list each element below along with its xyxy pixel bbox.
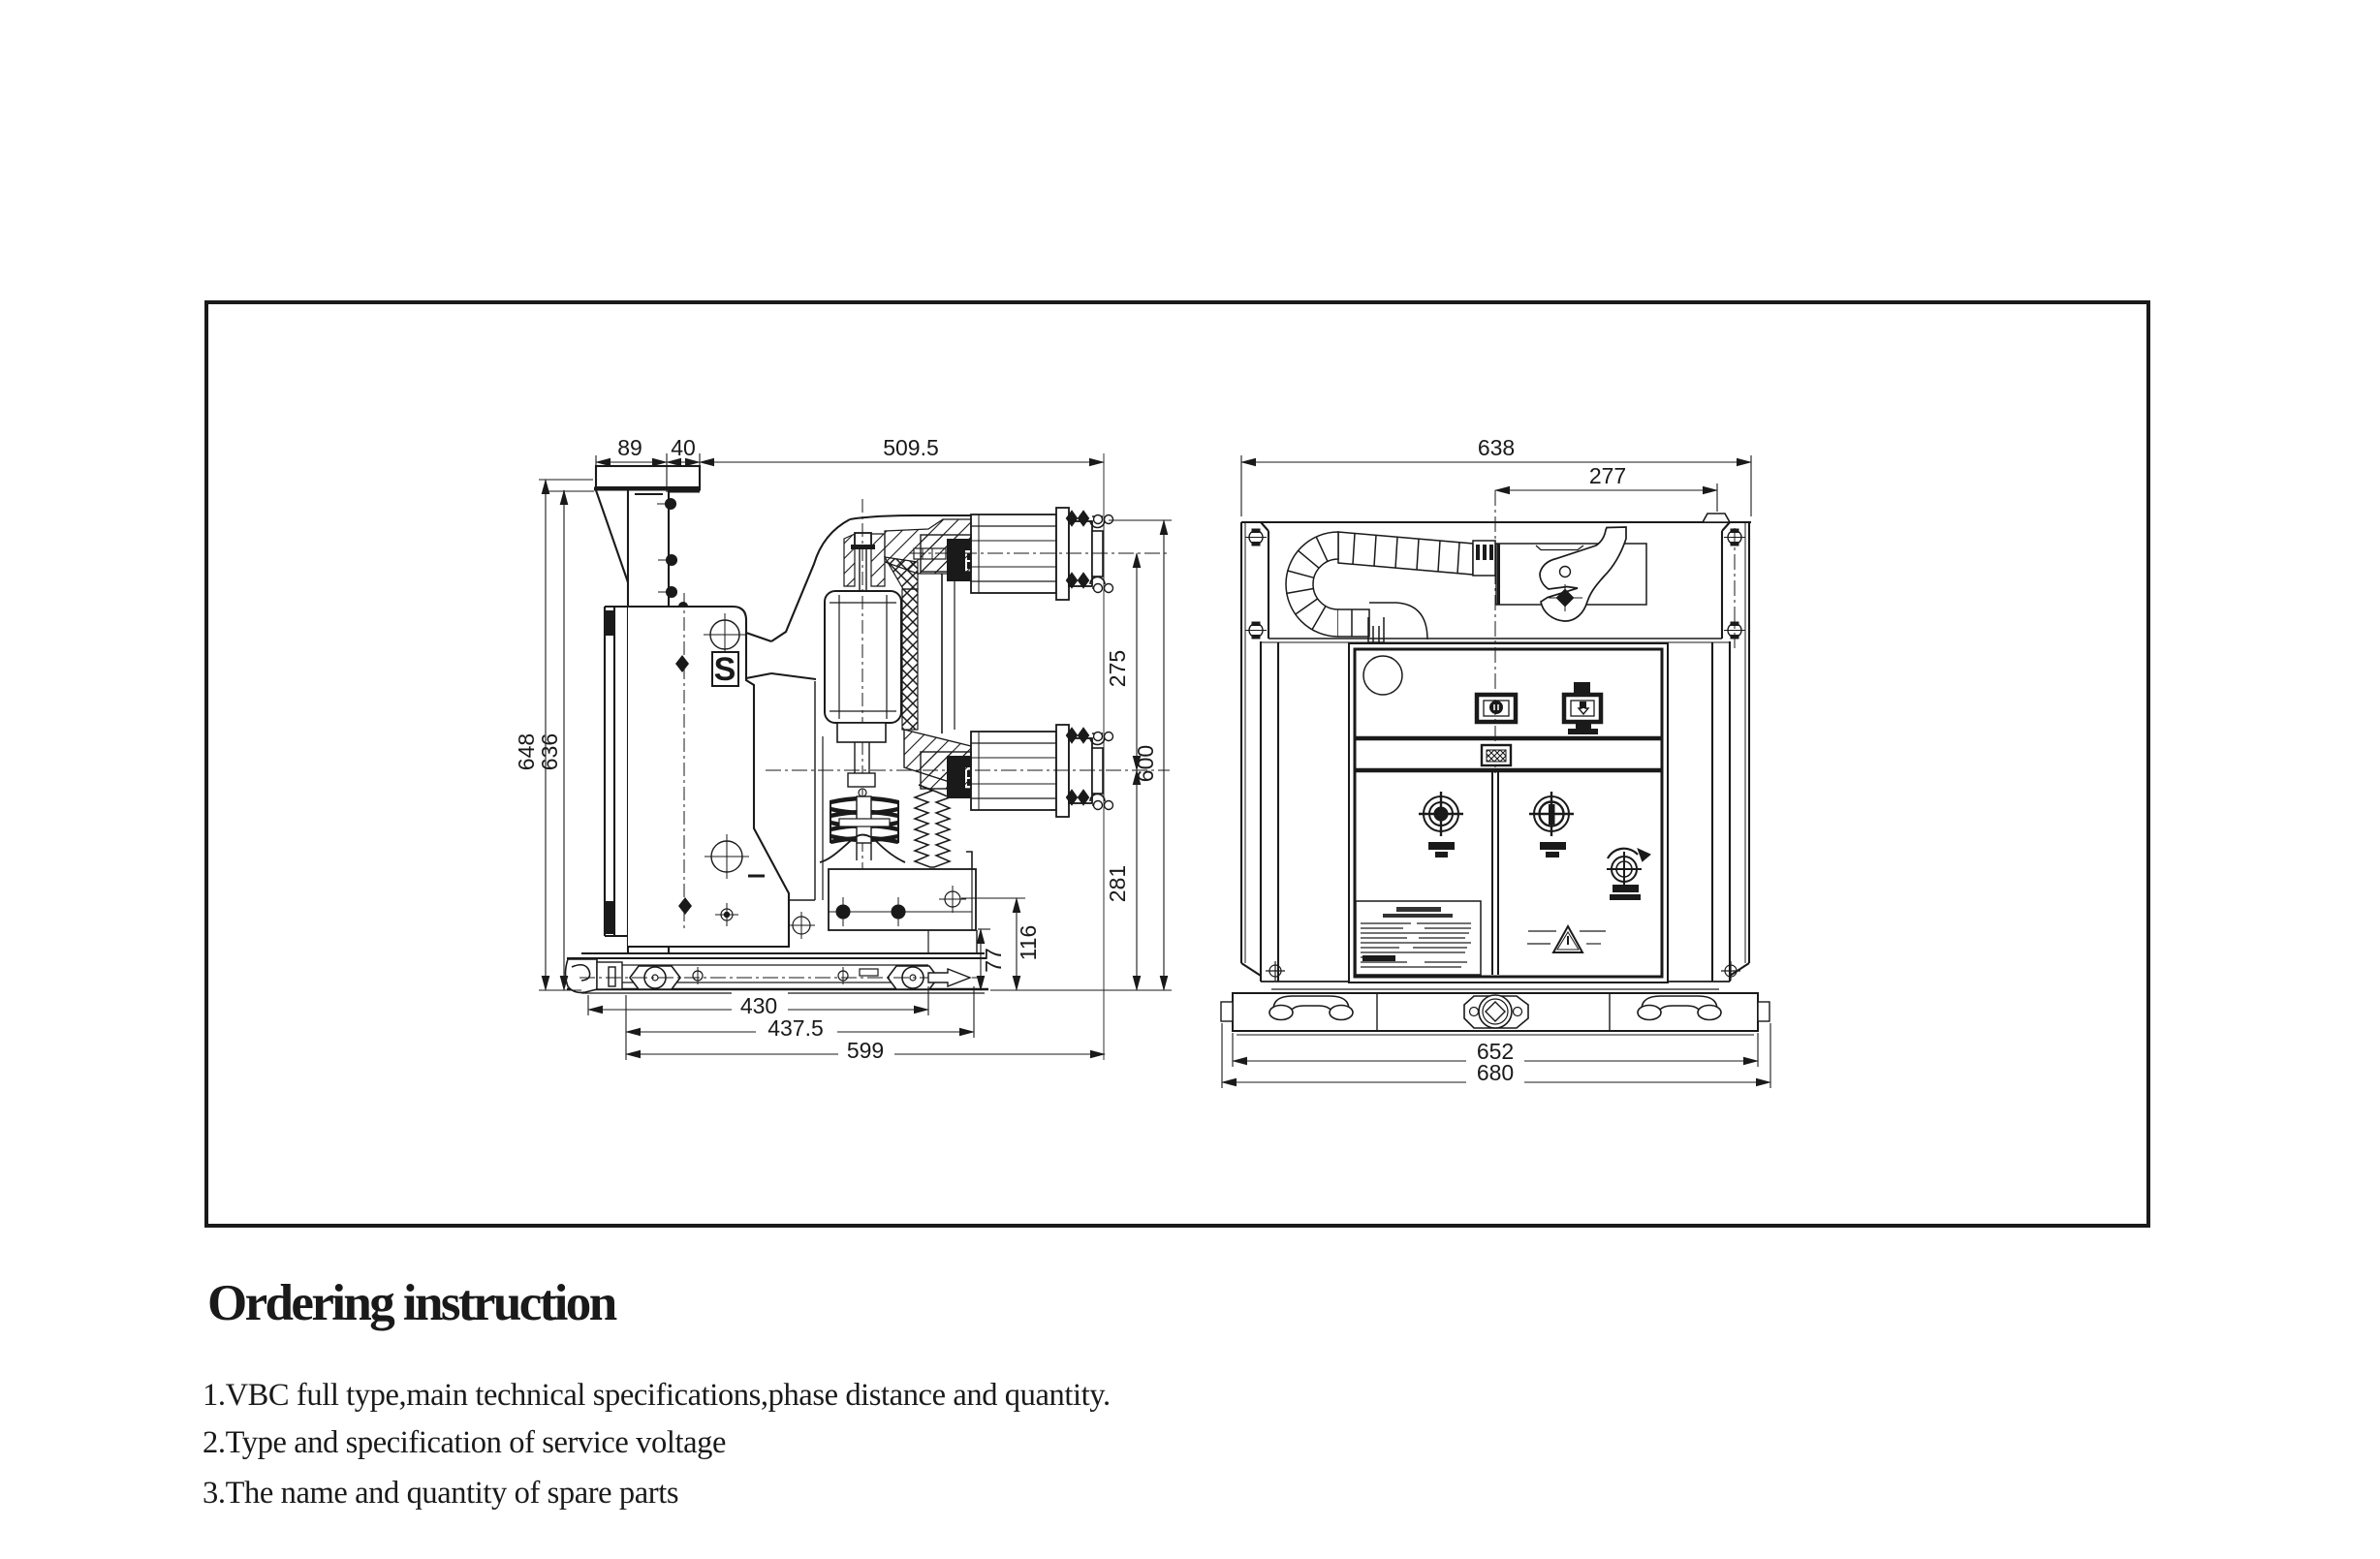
svg-text:277: 277 (1589, 463, 1626, 488)
svg-text:S: S (714, 651, 736, 688)
svg-text:77: 77 (981, 948, 1006, 973)
svg-text:Ordering instruction: Ordering instruction (207, 1275, 617, 1331)
svg-text:638: 638 (1478, 435, 1515, 460)
svg-text:281: 281 (1105, 865, 1130, 902)
svg-text:275: 275 (1105, 650, 1130, 687)
svg-text:2.Type and specification of se: 2.Type and specification of service volt… (203, 1425, 726, 1460)
svg-text:680: 680 (1477, 1060, 1514, 1085)
svg-text:636: 636 (537, 733, 562, 770)
svg-text:599: 599 (847, 1038, 884, 1063)
svg-text:437.5: 437.5 (767, 1015, 824, 1041)
svg-text:509.5: 509.5 (883, 435, 939, 460)
svg-text:116: 116 (1016, 925, 1041, 961)
svg-text:1.VBC full type,main technical: 1.VBC full type,main technical specifica… (203, 1378, 1111, 1413)
svg-text:648: 648 (514, 733, 539, 770)
svg-text:40: 40 (671, 435, 696, 460)
svg-text:600: 600 (1133, 745, 1158, 782)
svg-text:89: 89 (617, 435, 642, 460)
svg-text:3.The name and quantity of spa: 3.The name and quantity of spare parts (203, 1476, 678, 1511)
